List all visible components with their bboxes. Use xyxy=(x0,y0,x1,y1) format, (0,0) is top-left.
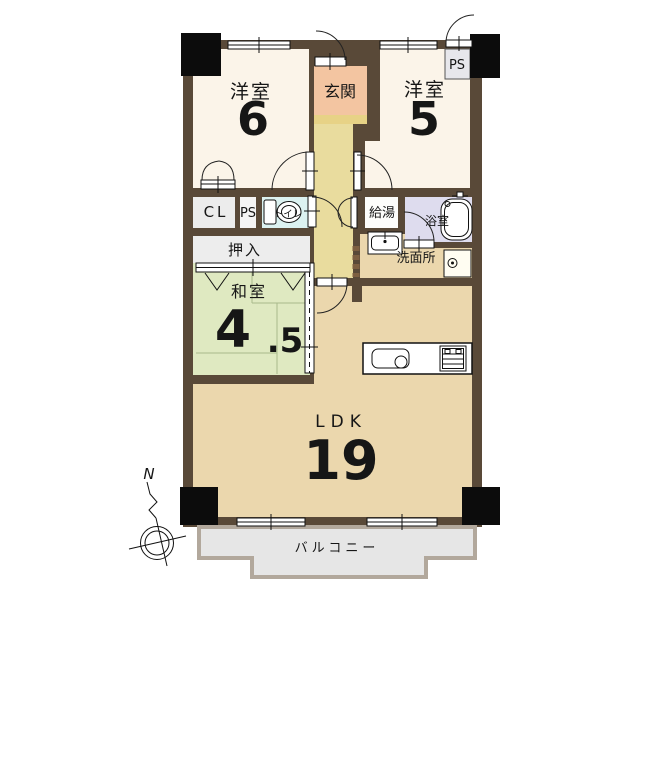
label-japanese-size-dec: .5 xyxy=(267,321,304,361)
pillar-bottom-right xyxy=(462,487,500,525)
hallway xyxy=(314,124,353,278)
label-oshiire: 押入 xyxy=(228,241,262,259)
label-toilet: トイレ xyxy=(274,209,303,220)
compass-icon xyxy=(129,482,186,566)
pillar-bottom-left xyxy=(180,487,218,525)
label-ps-mid: PS xyxy=(240,206,256,221)
label-japanese: 和室 xyxy=(231,282,267,301)
label-balcony: バルコニー xyxy=(295,541,380,556)
wall-stub xyxy=(352,286,362,302)
label-entrance: 玄関 xyxy=(324,82,356,101)
pillar-top-left xyxy=(181,33,221,76)
label-western5-size: 5 xyxy=(408,92,440,146)
kitchen-counter-icon xyxy=(363,343,472,374)
label-ps-top: PS xyxy=(449,58,465,73)
pillar-top-right xyxy=(470,34,500,78)
label-cl: CL xyxy=(204,203,229,221)
label-ldk-size: 19 xyxy=(303,429,378,492)
floorplan-canvas: 洋室 6 玄関 洋室 5 PS CL PS トイレ 給湯 浴室 洗面所 押入 和… xyxy=(0,0,647,775)
label-western6-size: 6 xyxy=(237,92,269,146)
label-japanese-size-int: 4 xyxy=(215,300,251,360)
entrance-step xyxy=(314,115,367,124)
washer-pan-icon xyxy=(444,250,471,277)
label-washroom: 洗面所 xyxy=(396,251,435,266)
label-north: N xyxy=(143,465,154,483)
floorplan-drawing: 洋室 6 玄関 洋室 5 PS CL PS トイレ 給湯 浴室 洗面所 押入 和… xyxy=(0,0,647,775)
label-bathroom: 浴室 xyxy=(425,213,449,228)
ps-top-door xyxy=(446,15,474,51)
label-water-heater: 給湯 xyxy=(369,206,395,221)
